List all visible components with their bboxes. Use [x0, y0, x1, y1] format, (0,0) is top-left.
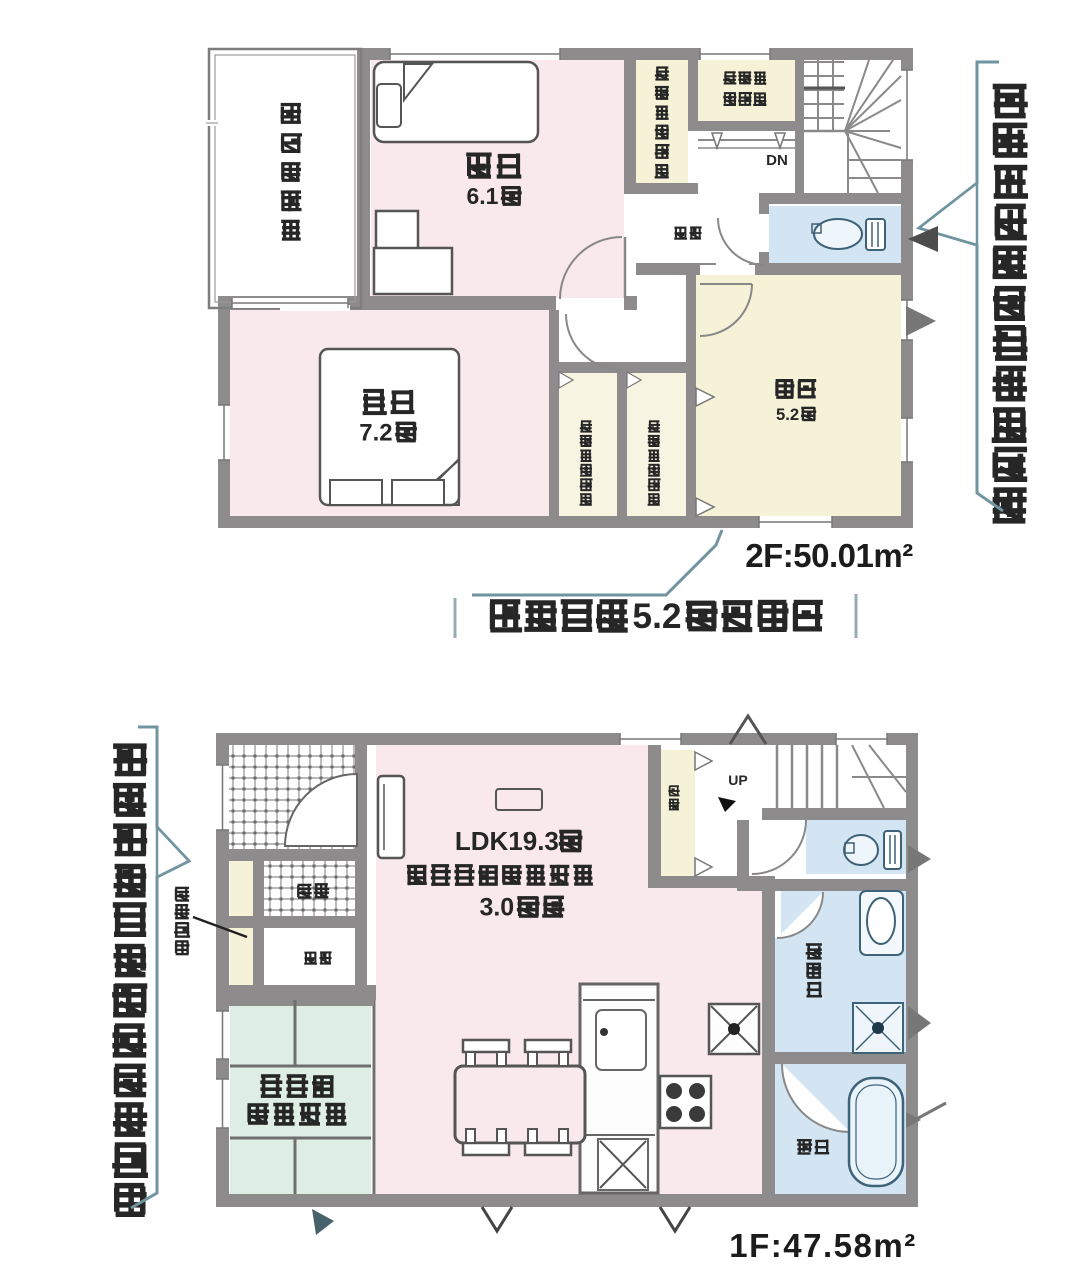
svg-text:5.2: 5.2 [632, 597, 681, 636]
svg-text:UP: UP [728, 772, 747, 788]
svg-text:7.2: 7.2 [359, 419, 392, 446]
svg-text:2F:50.01m²: 2F:50.01m² [745, 537, 913, 574]
svg-text:5.2: 5.2 [776, 405, 799, 424]
svg-text:DN: DN [766, 152, 788, 169]
svg-text:3.0: 3.0 [479, 894, 514, 922]
svg-text:1F:47.58m²: 1F:47.58m² [729, 1227, 916, 1264]
svg-text:6.1: 6.1 [467, 183, 499, 209]
svg-text:LDK19.3: LDK19.3 [455, 826, 559, 856]
